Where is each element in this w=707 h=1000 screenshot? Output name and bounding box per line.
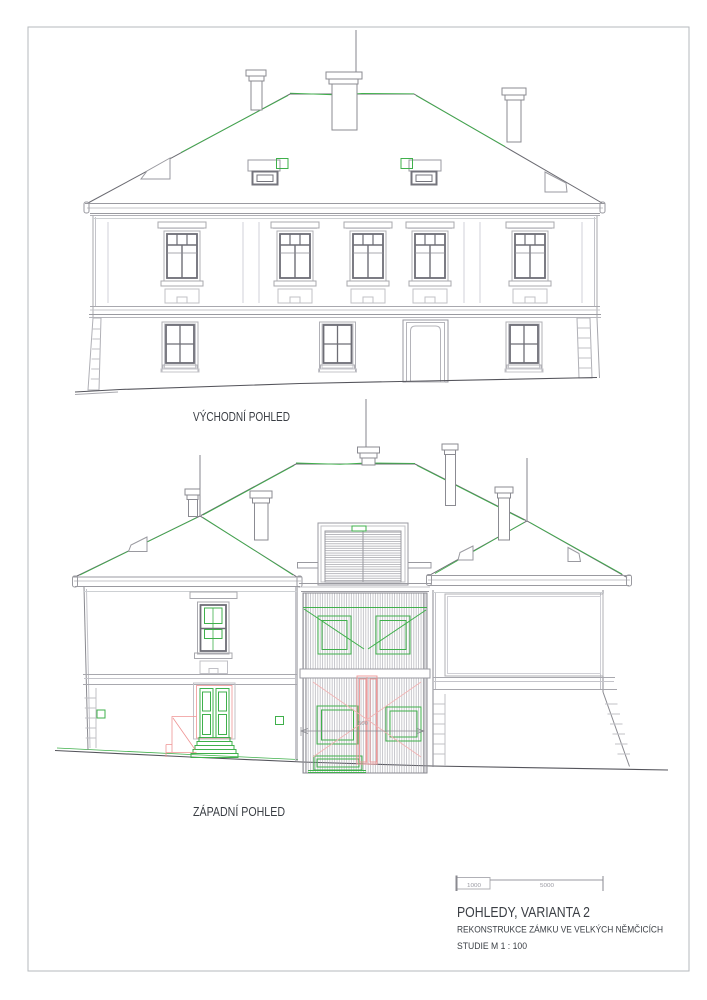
scale-bar-label-5000: 5000	[540, 883, 554, 889]
screen-dimension-label: 500	[358, 721, 368, 727]
study-scale-note: STUDIE M 1 : 100	[457, 941, 527, 952]
dormer-railing-right	[408, 563, 431, 569]
east-upper-window-3	[344, 222, 392, 303]
scale-bar: 1000 5000	[457, 876, 604, 892]
project-name: REKONSTRUKCE ZÁMKU VE VELKÝCH NĚMČICÍCH	[457, 925, 663, 936]
west-central-chimney	[358, 399, 380, 465]
east-elevation-label: VÝCHODNÍ POHLED	[193, 409, 290, 424]
west-right-pavilion-cornice	[427, 575, 632, 587]
title-block: POHLEDY, VARIANTA 2 REKONSTRUKCE ZÁMKU V…	[457, 904, 663, 952]
pavilion-entrance-door	[194, 683, 236, 739]
east-left-chimney	[246, 70, 266, 110]
east-upper-window-4	[406, 222, 454, 303]
east-entrance-door	[403, 320, 448, 382]
screen-deck-band	[300, 669, 430, 678]
pavilion-floor-band	[83, 675, 297, 685]
right-pavilion-quoins	[433, 694, 630, 766]
east-dormer-vent-left	[248, 159, 288, 185]
west-right-pavilion-facade	[433, 590, 630, 767]
dormer-railing-left	[298, 563, 319, 569]
west-elevation-drawing: 500	[55, 399, 668, 773]
east-lower-window-3	[505, 322, 543, 372]
east-roof-stub-left	[141, 158, 170, 179]
east-lower-window-2	[319, 322, 357, 372]
east-upper-window-1	[158, 222, 206, 303]
east-upper-windows	[158, 222, 554, 303]
west-central-screen: 500	[299, 584, 431, 774]
east-elevation-drawing	[75, 30, 605, 395]
west-left-pavilion-chimneys	[185, 489, 272, 540]
drawing-canvas: VÝCHODNÍ POHLED	[0, 0, 707, 1000]
west-elevation-label: ZÁPADNÍ POHLED	[193, 804, 285, 819]
west-central-dormer	[298, 523, 432, 585]
east-dormer-vent-right	[401, 159, 441, 185]
west-right-main-chimney	[442, 444, 458, 506]
east-roof-stub-right	[545, 172, 567, 192]
east-string-course	[89, 307, 601, 318]
east-eaves-cornice	[84, 202, 605, 214]
west-left-pavilion-cornice	[73, 576, 303, 587]
east-ground-line	[75, 378, 597, 395]
wall-marker-left	[97, 710, 105, 718]
sheet-border	[28, 27, 689, 971]
east-lower-window-1	[161, 322, 199, 372]
east-central-chimney	[326, 72, 362, 130]
drawing-sheet: VÝCHODNÍ POHLED	[0, 0, 707, 1000]
east-right-chimney	[502, 88, 526, 142]
pavilion-upper-window	[190, 592, 237, 674]
west-right-pavilion-roof	[430, 458, 627, 578]
east-upper-window-5	[506, 222, 554, 303]
pavilion-large-opening	[445, 594, 603, 676]
scale-bar-label-1000: 1000	[467, 883, 481, 889]
pavilion-stair-railing	[166, 717, 197, 758]
east-upper-window-2	[271, 222, 319, 303]
right-pavilion-floor-band	[433, 678, 617, 690]
sheet-title: POHLEDY, VARIANTA 2	[457, 904, 590, 921]
wall-marker-right	[276, 717, 284, 725]
west-left-pavilion-facade	[83, 587, 297, 762]
